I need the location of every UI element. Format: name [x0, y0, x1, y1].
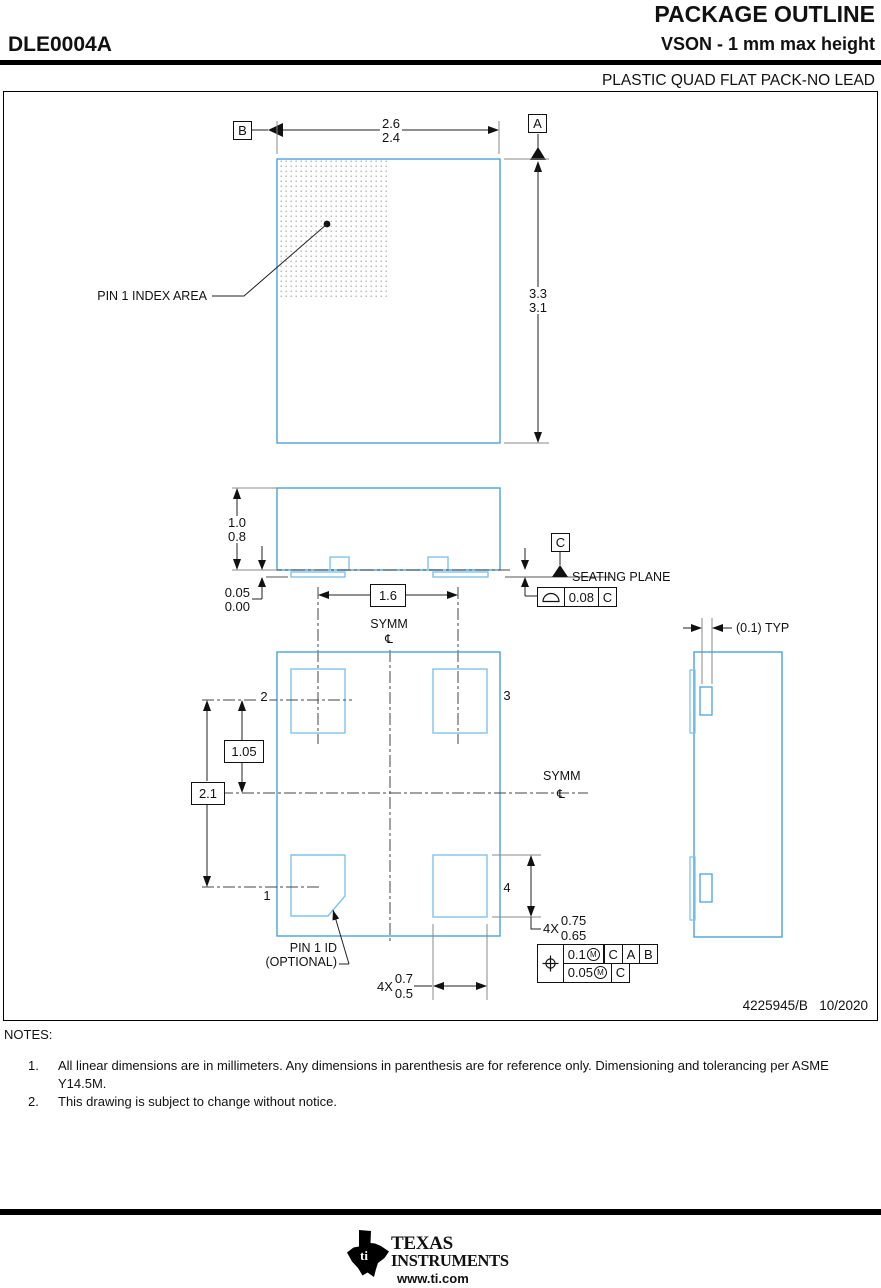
right-side-view: [683, 618, 782, 937]
ti-letters: ti: [360, 1248, 368, 1263]
pad-length-qty: 4X: [543, 921, 559, 936]
position-datum-a: A: [622, 944, 641, 964]
position-symbol-cell: [537, 944, 564, 983]
note-2-text: This drawing is subject to change withou…: [58, 1093, 830, 1111]
position-tol-2: 0.05 M: [563, 963, 612, 983]
dim-body-length: 3.33.1: [527, 287, 549, 314]
ti-website: www.ti.com: [397, 1271, 469, 1286]
position-tol-row-1: 0.1 M C A B: [563, 944, 658, 964]
position-datum-c2: C: [611, 963, 630, 983]
texas-shape-icon: ti: [347, 1230, 389, 1277]
footer-rule: [0, 1209, 881, 1215]
note-1-text: All linear dimensions are in millimeters…: [58, 1057, 830, 1092]
notes-heading: NOTES:: [4, 1026, 52, 1044]
dim-pad-length: 4X 0.750.65: [543, 913, 586, 943]
dim-pad-width: 4X 0.70.5: [377, 971, 413, 1001]
pad-width-qty: 4X: [377, 979, 393, 994]
datum-a-box: A: [528, 114, 547, 133]
position-tol-row-2: 0.05 M C: [563, 963, 658, 983]
position-tol-1: 0.1 M: [563, 944, 605, 964]
centerline-symbol-right: ℄: [557, 787, 565, 801]
position-tolerance-frame: 0.1 M C A B 0.05 M C: [537, 944, 658, 983]
pin-2-label: 2: [258, 690, 269, 704]
seating-plane-label: SEATING PLANE: [572, 570, 670, 584]
datum-b-box: B: [233, 121, 252, 140]
pin-1-label: 1: [261, 889, 272, 903]
pin-3-label: 3: [503, 689, 510, 703]
profile-surface-symbol-cell: [537, 587, 565, 607]
flatness-datum: C: [598, 587, 617, 607]
position-symbol-icon: [542, 955, 559, 972]
dim-standoff: 0.050.00: [223, 586, 252, 613]
mmc-modifier-icon: M: [587, 948, 600, 961]
top-view: [212, 121, 549, 443]
position-datum-b: B: [639, 944, 658, 964]
side-view: [232, 488, 612, 744]
drawing-number: 4225945/B 10/2020: [743, 999, 868, 1013]
lead-typ-label: (0.1) TYP: [736, 621, 789, 635]
pin1-index-area-label: PIN 1 INDEX AREA: [97, 289, 207, 303]
brand-instruments: INSTRUMENTS: [391, 1251, 509, 1271]
flatness-callout: 0.08 C: [537, 587, 617, 607]
dim-body-height: 1.00.8: [226, 516, 248, 543]
pin1-id-label: PIN 1 ID (OPTIONAL): [265, 941, 337, 969]
flatness-value: 0.08: [564, 587, 599, 607]
dim-row-pitch: 1.05: [224, 740, 264, 763]
dim-body-width: 2.62.4: [380, 117, 402, 144]
package-outline-page: PACKAGE OUTLINE DLE0004A VSON - 1 mm max…: [0, 0, 881, 1288]
profile-surface-icon: [542, 592, 560, 603]
dim-pad-pitch: 1.6: [370, 584, 406, 607]
symm-top-label: SYMM: [370, 617, 408, 631]
ti-logo: ti: [347, 1230, 389, 1282]
datum-c-box: C: [551, 533, 570, 552]
mmc-modifier-icon-2: M: [594, 966, 607, 979]
dim-row-span: 2.1: [191, 782, 225, 805]
pin-4-label: 4: [503, 881, 510, 895]
position-datum-c: C: [603, 944, 622, 964]
centerline-symbol-top: ℄: [385, 632, 393, 646]
symm-right-label: SYMM: [543, 769, 581, 783]
note-1-number: 1.: [28, 1057, 39, 1075]
note-2-number: 2.: [28, 1093, 39, 1111]
